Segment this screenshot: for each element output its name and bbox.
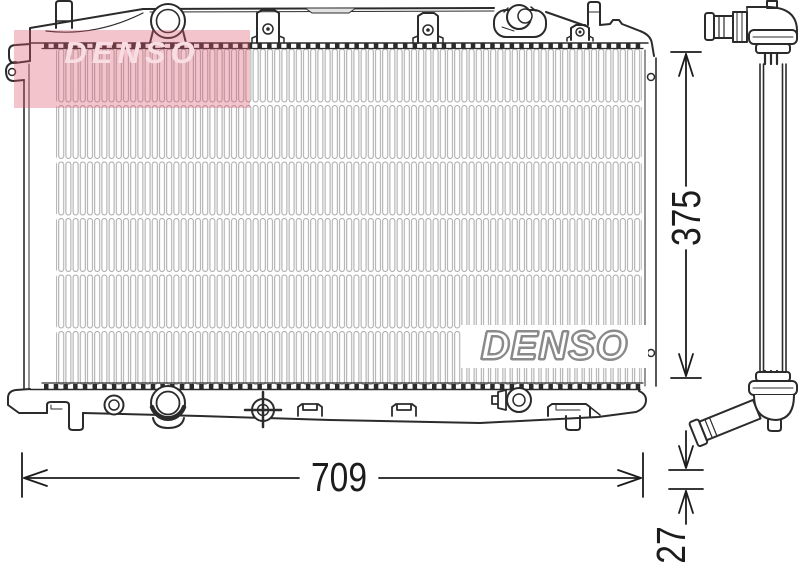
sensor-fitting <box>492 388 531 412</box>
pressure-cap <box>494 5 546 37</box>
drain-petcock <box>245 392 281 427</box>
depth-dimension-label: 27 <box>649 508 693 566</box>
outlet-pipe-bottom <box>689 371 797 447</box>
bottom-tank <box>8 386 646 430</box>
denso-core-logo: DENSO <box>461 325 648 368</box>
outlet-pipe <box>151 386 185 428</box>
side-body <box>760 64 786 371</box>
width-dimension-label: 709 <box>298 455 380 499</box>
drain-plug <box>105 396 124 415</box>
denso-watermark-text: DENSO <box>64 35 199 71</box>
height-dimension-label: 375 <box>664 165 708 272</box>
denso-watermark: DENSO <box>14 30 250 108</box>
radiator-technical-drawing: DENSO DENSO 709 375 27 <box>0 0 800 566</box>
inlet-pipe-top <box>705 1 797 64</box>
